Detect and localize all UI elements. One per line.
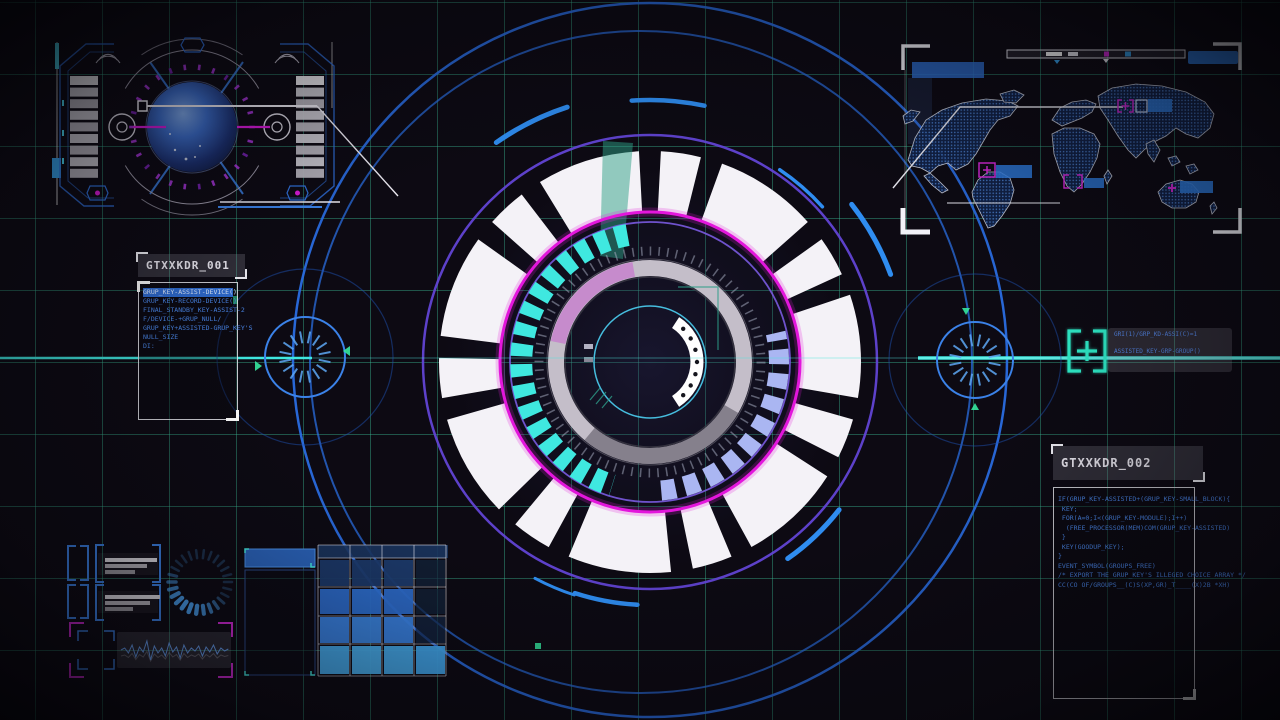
- code-line: EVENT_SYMBOL(GROUPS_FREE): [1058, 562, 1190, 572]
- code-line: FOR(A=0;I<(GRUP_KEY-MODULE);I++): [1058, 514, 1190, 524]
- cell-grid[interactable]: [318, 545, 446, 676]
- mini-panel-body: [245, 570, 315, 675]
- probe-square: [138, 101, 147, 111]
- bottom-left-cluster: [68, 545, 448, 677]
- orb-gauge: [52, 38, 398, 215]
- map-label-chip-left: [912, 62, 984, 78]
- tooltip-line: ASSISTED_KEY-GRP-GROUP(): [1114, 348, 1226, 356]
- right-reticle: [889, 274, 1061, 446]
- inner-capture-frame: [78, 631, 114, 669]
- code-line: }: [1058, 552, 1190, 562]
- mini-panel-header[interactable]: [245, 549, 315, 567]
- code-line: GRUP_KEY+ASSISTED-GRUP_KEY'S: [143, 324, 233, 333]
- world-map-panel: [893, 44, 1240, 232]
- code-line: KEY;: [1058, 505, 1190, 515]
- left-meter-stack: [70, 76, 98, 178]
- panel-001-title-bar[interactable]: GTXXKDR_001: [138, 254, 245, 277]
- target-bracket-plus-icon[interactable]: [1069, 331, 1105, 371]
- code-line: NULL_SIZE: [143, 333, 233, 342]
- code-line: (FREE_PROCESSOR(MEM)COM(GRUP_KEY-ASSISTE…: [1058, 524, 1190, 534]
- loading-spinner: [168, 550, 232, 614]
- code-line: GRUP_KEY-ASSIST-DEVICE(): [143, 288, 233, 297]
- cyan-accent-bar: [55, 43, 59, 69]
- panel-002-title: GTXXKDR_002: [1061, 456, 1151, 470]
- map-progress-bar[interactable]: [1007, 50, 1185, 58]
- panel-002-title-bar[interactable]: GTXXKDR_002: [1053, 446, 1203, 480]
- tooltip-line: GRI(1)/GRP_KD-ASSI(C)=1: [1114, 331, 1226, 339]
- code-line: GRUP_KEY-RECORD-DEVICE(): [143, 297, 233, 306]
- code-line: CC(CO OF/GROUPS__(C)S(XP,GR)_T____(X)2B …: [1058, 581, 1190, 591]
- panel-001-title: GTXXKDR_001: [146, 259, 230, 272]
- hud-screen: GTXXKDR_001 GRUP_KEY-ASSIST-DEVICE() GRU…: [0, 0, 1280, 720]
- panel-002-body: IF(GRUP_KEY-ASSISTED+(GRUP_KEY-SMALL_BLO…: [1053, 487, 1195, 699]
- code-line: F/DEVICE-+GRUP_NULL/: [143, 315, 233, 324]
- target-tooltip: GRI(1)/GRP_KD-ASSI(C)=1 ASSISTED_KEY-GRP…: [1108, 328, 1232, 372]
- code-line: }: [1058, 533, 1190, 543]
- code-line: IF(GRUP_KEY-ASSISTED+(GRUP_KEY-SMALL_BLO…: [1058, 495, 1190, 505]
- map-label-chip-right: [1188, 51, 1238, 64]
- triangle-up-icon: [971, 403, 979, 410]
- code-line: KEY(GOODUP_KEY);: [1058, 543, 1190, 553]
- code-line: FINAL_STANDBY_KEY-ASSIST-2: [143, 306, 233, 315]
- triangle-right-icon: [255, 361, 262, 371]
- right-meter-stack: [296, 76, 324, 178]
- code-line: DI:: [143, 342, 233, 351]
- code-line: /* EXPORT THE GRUP_KEY'S ILLEGED CHOICE …: [1058, 571, 1190, 581]
- panel-001-body: GRUP_KEY-ASSIST-DEVICE() GRUP_KEY-RECORD…: [138, 282, 238, 420]
- cell-grid-header: [318, 545, 448, 558]
